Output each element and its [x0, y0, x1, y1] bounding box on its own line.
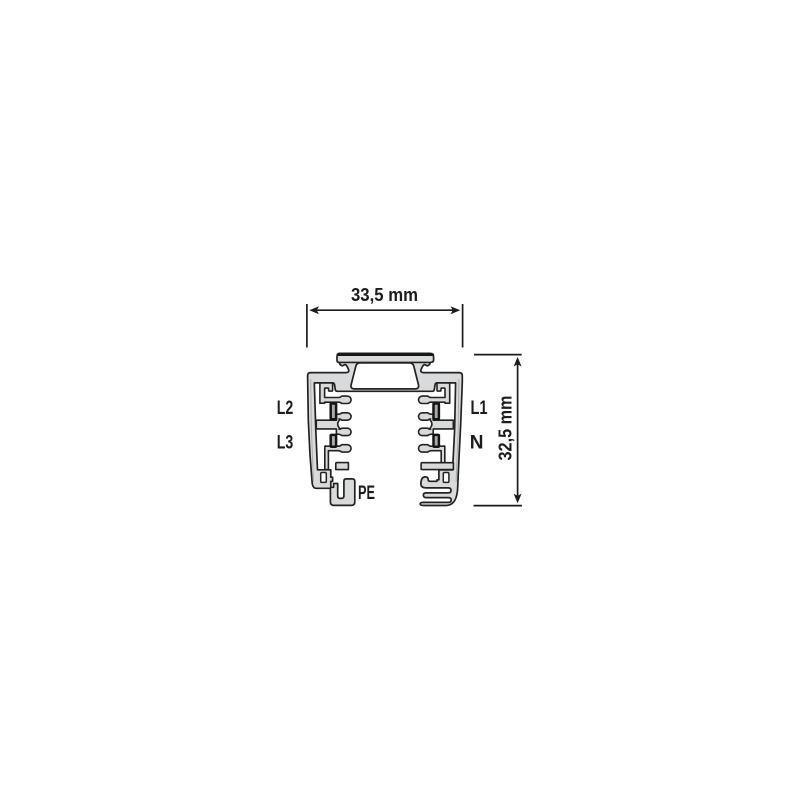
- svg-text:33,5 mm: 33,5 mm: [351, 284, 418, 305]
- svg-text:L3: L3: [277, 432, 294, 453]
- svg-text:PE: PE: [358, 483, 375, 504]
- svg-text:32,5 mm: 32,5 mm: [494, 396, 515, 461]
- svg-text:L2: L2: [277, 398, 294, 419]
- svg-text:L1: L1: [471, 398, 488, 419]
- svg-text:N: N: [470, 432, 484, 453]
